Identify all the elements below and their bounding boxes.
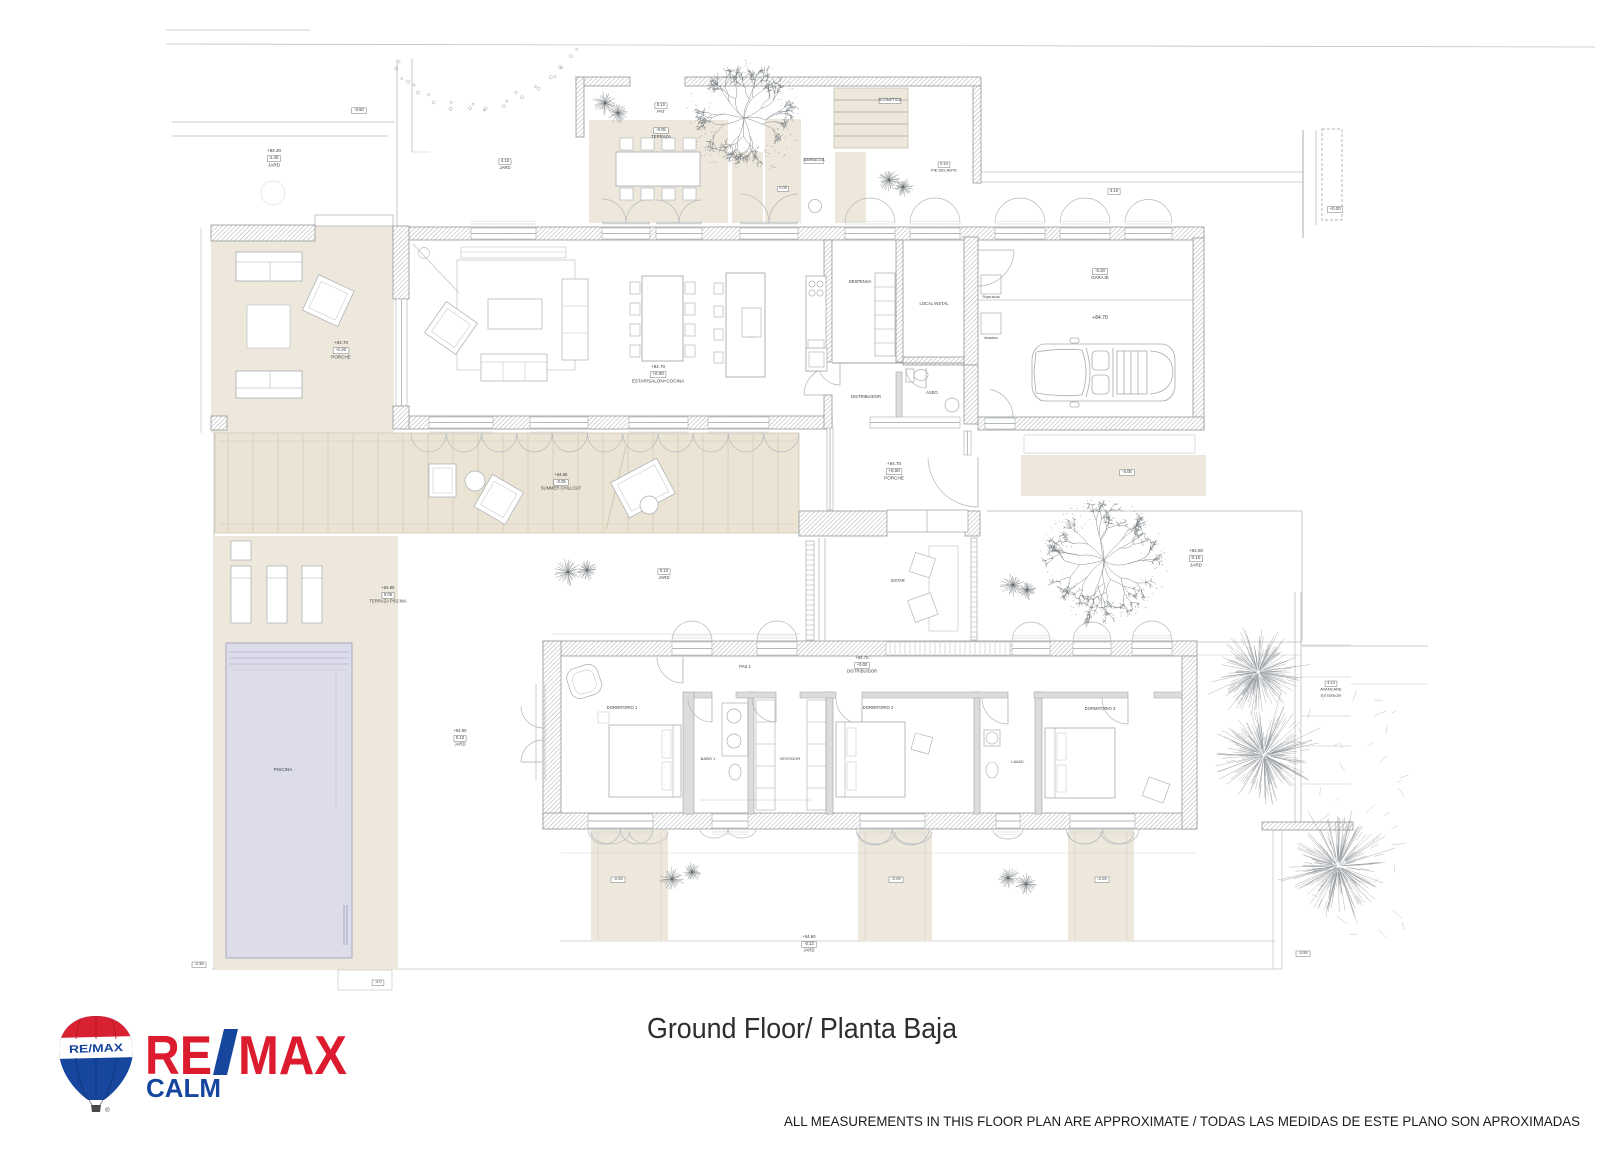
svg-text:TERRAZA: TERRAZA — [651, 134, 671, 139]
svg-text:4.10: 4.10 — [1327, 680, 1336, 685]
svg-text:-0.50: -0.50 — [354, 107, 364, 112]
svg-text:+84.70: +84.70 — [1092, 315, 1108, 321]
svg-text:0.10: 0.10 — [456, 735, 465, 740]
svg-text:-0.05: -0.05 — [613, 876, 623, 881]
svg-text:-0.05: -0.05 — [1122, 469, 1132, 474]
svg-text:MAX: MAX — [238, 1024, 347, 1086]
svg-text:PORCHE: PORCHE — [331, 354, 351, 359]
svg-text:DISTRIBUIDOR: DISTRIBUIDOR — [847, 669, 877, 674]
svg-text:VESTIDOR: VESTIDOR — [780, 756, 801, 761]
svg-text:PIE DELANTE: PIE DELANTE — [931, 168, 957, 173]
svg-text:DESPENSA: DESPENSA — [849, 279, 872, 284]
svg-text:DISTRIBUIDOR: DISTRIBUIDOR — [851, 394, 881, 399]
svg-text:lavadora: lavadora — [984, 336, 997, 340]
svg-text:SUMMER CHILLOUT: SUMMER CHILLOUT — [541, 486, 582, 491]
svg-text:0.05: 0.05 — [384, 592, 393, 597]
svg-text:EXTERIOR: EXTERIOR — [1321, 693, 1342, 698]
svg-text:0.10: 0.10 — [1192, 555, 1201, 560]
svg-text:4.10: 4.10 — [501, 158, 510, 163]
svg-text:JARD: JARD — [455, 742, 466, 747]
svg-text:+0.00: +0.00 — [1329, 206, 1341, 211]
svg-text:+84.85: +84.85 — [555, 472, 569, 477]
svg-text:-0.05: -0.05 — [891, 876, 901, 881]
svg-text:PORCHE: PORCHE — [884, 475, 904, 480]
svg-text:-0.20: -0.20 — [336, 347, 347, 352]
svg-text:+84.70: +84.70 — [651, 364, 666, 369]
svg-text:JARD: JARD — [1190, 562, 1203, 567]
svg-text:JARD: JARD — [500, 165, 511, 170]
svg-text:0.10: 0.10 — [660, 568, 669, 573]
svg-text:-0.13: -0.13 — [804, 941, 814, 946]
svg-text:0.10: 0.10 — [940, 161, 949, 166]
svg-text:PISCINA: PISCINA — [274, 767, 293, 772]
svg-text:Ground Floor/ Planta Baja: Ground Floor/ Planta Baja — [647, 1013, 957, 1045]
svg-text:-4.0: -4.0 — [375, 979, 383, 984]
svg-text:BARBACOA: BARBACOA — [803, 158, 825, 162]
svg-text:+0.00: +0.00 — [857, 662, 868, 667]
svg-text:+84.70: +84.70 — [887, 461, 902, 466]
svg-text:JARD: JARD — [268, 162, 281, 167]
svg-text:JARD: JARD — [804, 948, 815, 953]
svg-text:-0.05: -0.05 — [656, 127, 666, 132]
svg-text:AVANCARE: AVANCARE — [1320, 687, 1342, 692]
svg-text:0.10: 0.10 — [657, 102, 666, 107]
svg-text:GARAJE: GARAJE — [1091, 275, 1109, 280]
svg-text:-0.05: -0.05 — [556, 479, 566, 484]
svg-text:PAT: PAT — [657, 109, 665, 114]
svg-text:DORMITORIO 2: DORMITORIO 2 — [863, 705, 894, 710]
svg-text:BAÑO 1: BAÑO 1 — [701, 756, 716, 761]
svg-text:+84.60: +84.60 — [1189, 548, 1204, 553]
svg-text:CALM: CALM — [146, 1073, 221, 1103]
svg-text:TERRAZA PISCINA: TERRAZA PISCINA — [369, 599, 406, 604]
svg-text:RE/MAX: RE/MAX — [69, 1042, 124, 1056]
svg-text:®: ® — [105, 1106, 110, 1114]
svg-text:ACOMETIDA: ACOMETIDA — [879, 98, 902, 102]
svg-text:-0.38: -0.38 — [194, 961, 204, 966]
svg-text:-0.55: -0.55 — [1298, 950, 1308, 955]
svg-text:4.10: 4.10 — [1110, 188, 1119, 193]
svg-text:+0.00: +0.00 — [888, 468, 900, 473]
svg-text:+84.70: +84.70 — [856, 655, 870, 660]
svg-text:+84.70: +84.70 — [334, 340, 349, 345]
svg-text:4.40: 4.40 — [270, 155, 279, 160]
svg-text:ALL MEASUREMENTS IN THIS FLOOR: ALL MEASUREMENTS IN THIS FLOOR PLAN ARE … — [784, 1113, 1580, 1129]
svg-text:-0.20: -0.20 — [1095, 268, 1106, 273]
svg-text:+84.85: +84.85 — [382, 585, 396, 590]
svg-text:0.05: 0.05 — [779, 186, 786, 190]
svg-text:JARD: JARD — [659, 575, 670, 580]
svg-text:LAVAD.: LAVAD. — [1011, 759, 1025, 764]
svg-text:ESTAR: ESTAR — [891, 578, 905, 583]
svg-text:DORMITORIO 1: DORMITORIO 1 — [607, 705, 638, 710]
svg-text:Ropa sucia: Ropa sucia — [983, 295, 1000, 299]
svg-text:ASEO: ASEO — [926, 390, 938, 395]
svg-text:+0.00: +0.00 — [652, 371, 664, 376]
svg-text:+84.30: +84.30 — [267, 148, 282, 153]
svg-text:-0.05: -0.05 — [1097, 876, 1107, 881]
svg-text:DORMITORIO 3: DORMITORIO 3 — [1085, 706, 1116, 711]
svg-text:LOCAL INSTAL: LOCAL INSTAL — [919, 301, 949, 306]
svg-text:PAS 1: PAS 1 — [739, 664, 751, 669]
svg-text:+84.80: +84.80 — [454, 728, 468, 733]
svg-text:+84.90: +84.90 — [803, 934, 817, 939]
svg-text:ESTAR/SALON+COCINA: ESTAR/SALON+COCINA — [632, 378, 685, 383]
